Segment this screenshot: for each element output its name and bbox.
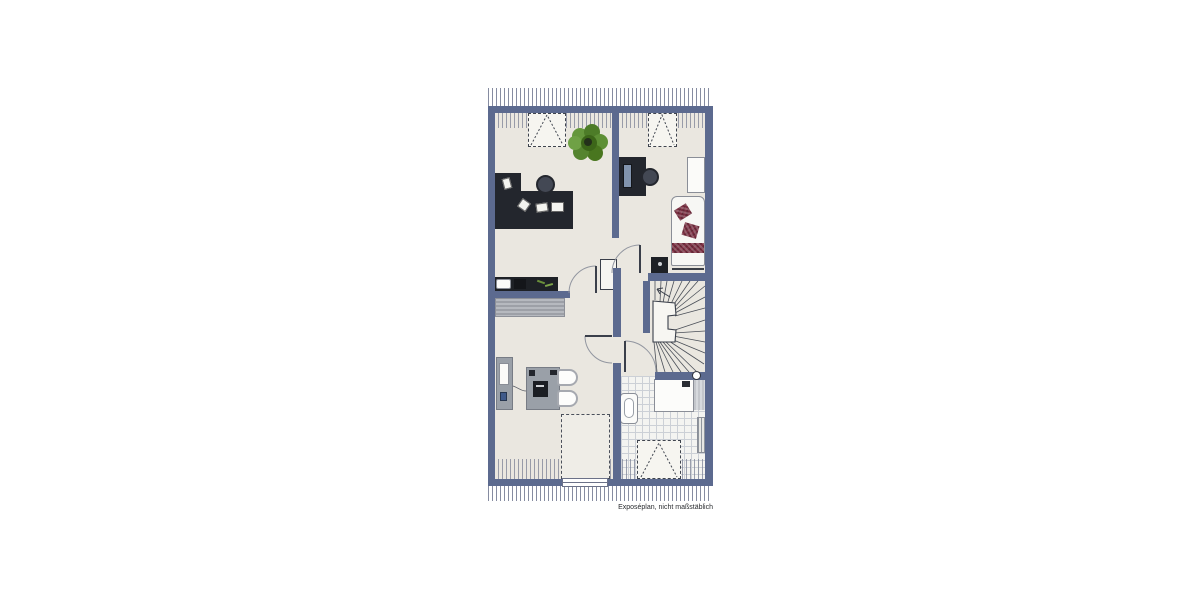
table-item [529, 370, 535, 376]
skylight-office [528, 113, 566, 147]
desk-chair [641, 168, 659, 186]
exterior-wall-bottom-left [488, 479, 562, 486]
bath-mat [694, 380, 705, 410]
pc-monitor [623, 164, 632, 188]
wall-bathroom-west [613, 380, 621, 479]
floor-plan-canvas: Exposéplan, nicht maßstäblich [0, 0, 1200, 600]
bed-footboard [672, 268, 704, 270]
kitchen-sink [496, 279, 511, 289]
laptop [533, 381, 548, 397]
roof-hatch-top-outer [488, 88, 712, 106]
ribbed-rug [495, 298, 565, 317]
wall-hall-west-stub [613, 363, 621, 380]
wall-office-south [494, 291, 570, 298]
office-chair [536, 175, 555, 194]
laptop-screen [536, 385, 544, 387]
floor-void-dashed-area [561, 414, 610, 479]
table-item [550, 370, 557, 375]
skylight-bathroom [637, 440, 681, 479]
wall-office-bedroom-divider [612, 112, 619, 238]
bed-blanket [672, 243, 704, 253]
sideboard-item [500, 392, 507, 401]
dining-chair [557, 390, 578, 407]
sideboard-tv [499, 363, 509, 385]
wall-hall-west [613, 268, 621, 337]
exterior-wall-bottom-right [608, 479, 712, 486]
washbasin-bowl [624, 398, 634, 418]
desk-notebook [551, 202, 564, 212]
nightstand-item [658, 262, 662, 266]
wall-bedroom-south [648, 273, 705, 281]
skylight-bedroom [648, 113, 677, 147]
window-frame-line [562, 482, 608, 483]
plan-caption: Exposéplan, nicht maßstäblich [570, 503, 713, 512]
desk-paper [535, 202, 548, 213]
wardrobe [687, 157, 705, 193]
exterior-wall-top [488, 106, 712, 113]
exterior-wall-right [705, 106, 713, 486]
wall-stairs-west [643, 281, 650, 333]
roof-hatch-bottom-outer [488, 486, 712, 501]
cooktop [514, 279, 526, 289]
dining-chair [557, 369, 578, 386]
shower-fixture [682, 381, 690, 387]
column [692, 371, 701, 380]
